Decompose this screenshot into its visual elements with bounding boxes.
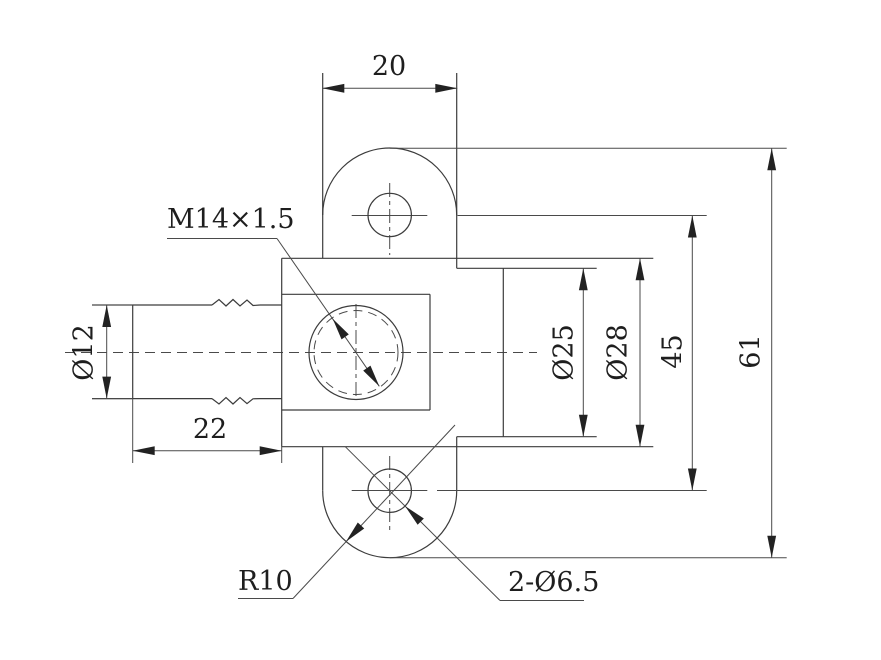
dim-bore-diameter: Ø25 <box>549 268 588 436</box>
centerlines <box>65 183 537 531</box>
dim-o28-arrow-top <box>636 258 645 280</box>
thread-callout-text: M14×1.5 <box>167 204 295 235</box>
barb-top-serration <box>212 300 260 307</box>
dim-o28-text: Ø28 <box>603 324 634 381</box>
dim-20-arrow-left <box>322 84 344 93</box>
dim-45-arrow-bottom <box>688 469 697 491</box>
dim-o25-arrow-bottom <box>579 415 588 437</box>
dim-61-arrow-top <box>767 148 776 170</box>
ear-holes-leader <box>345 447 500 601</box>
dim-22-text: 22 <box>193 414 227 445</box>
callout-thread: M14×1.5 <box>167 204 383 389</box>
part-drawing-svg: 20 Ø12 22 Ø25 Ø28 45 <box>0 0 881 660</box>
thread-callout-leader <box>277 239 379 387</box>
dim-o25-text: Ø25 <box>549 324 580 381</box>
dim-61-text: 61 <box>736 334 767 368</box>
thread-callout-arrow-upper <box>329 316 349 339</box>
dim-o25-arrow-top <box>579 268 588 290</box>
thread-callout-arrow-lower <box>363 366 383 389</box>
dim-o12-arrow-bottom <box>102 377 111 399</box>
dim-22-arrow-left <box>133 446 155 455</box>
dim-20-text: 20 <box>372 51 406 82</box>
dim-20-arrow-right <box>435 84 457 93</box>
dim-barb-length: 22 <box>133 399 282 463</box>
dim-o12-arrow-top <box>102 305 111 327</box>
drawing-canvas: 20 Ø12 22 Ø25 Ø28 45 <box>0 0 881 660</box>
dim-top-width: 20 <box>322 51 457 93</box>
dim-61-arrow-bottom <box>767 536 776 558</box>
dim-22-arrow-right <box>260 446 282 455</box>
dim-body-diameter: Ø28 <box>603 258 645 446</box>
r10-leader <box>293 425 455 599</box>
dim-45-arrow-top <box>688 216 697 238</box>
dim-45-text: 45 <box>658 334 689 368</box>
ear-holes-text: 2-Ø6.5 <box>508 567 599 598</box>
hose-barb <box>92 300 282 405</box>
dim-barb-diameter: Ø12 <box>69 305 133 399</box>
ear-holes-arrow <box>402 503 424 525</box>
dim-o28-arrow-bottom <box>636 425 645 447</box>
bottom-ear <box>323 437 457 558</box>
barb-bottom-serration <box>212 398 260 404</box>
r10-text: R10 <box>238 566 293 597</box>
dim-o12-text: Ø12 <box>69 324 100 381</box>
